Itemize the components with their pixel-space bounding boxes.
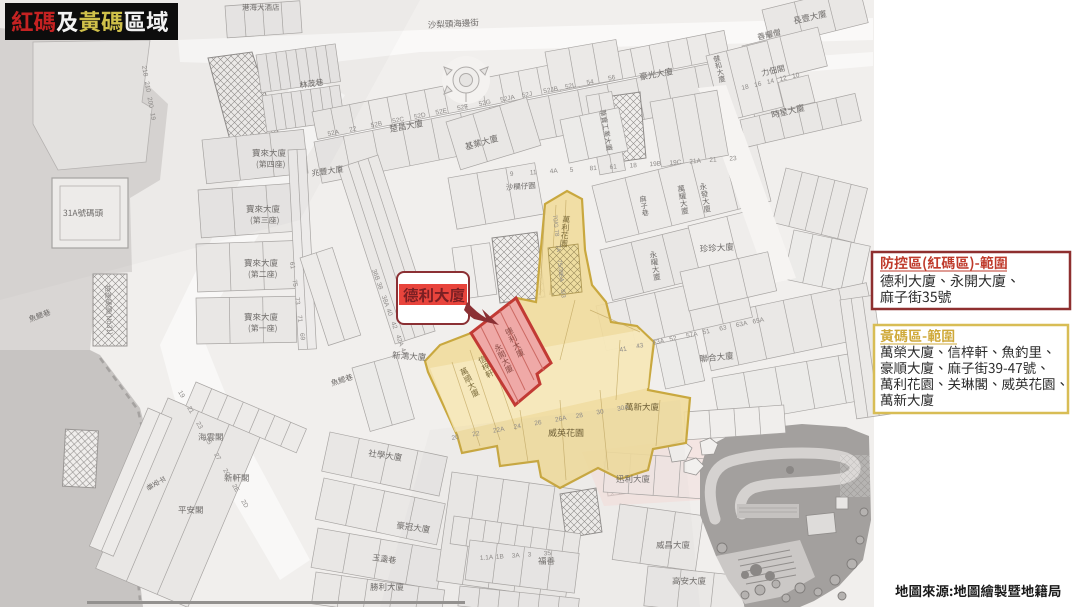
svg-text:4A: 4A: [550, 168, 559, 176]
svg-text:23: 23: [729, 155, 737, 163]
svg-text:69: 69: [298, 333, 306, 342]
svg-text:73: 73: [293, 297, 301, 306]
svg-text:5/3: 5/3: [559, 289, 566, 299]
svg-text:78: 78: [553, 229, 560, 237]
svg-text:7A: 7A: [554, 244, 561, 252]
svg-text:19B: 19B: [649, 160, 661, 168]
svg-text:11: 11: [530, 169, 538, 176]
svg-text:81: 81: [589, 165, 597, 173]
svg-text:71: 71: [296, 315, 304, 324]
svg-text:5A: 5A: [557, 274, 564, 282]
svg-text:75: 75: [291, 279, 299, 288]
svg-text:21A: 21A: [689, 158, 702, 166]
svg-text:61: 61: [288, 261, 296, 270]
svg-text:19C: 19C: [669, 159, 682, 167]
svg-text:21: 21: [709, 157, 717, 165]
svg-text:61: 61: [609, 164, 617, 172]
svg-text:18: 18: [629, 162, 637, 170]
